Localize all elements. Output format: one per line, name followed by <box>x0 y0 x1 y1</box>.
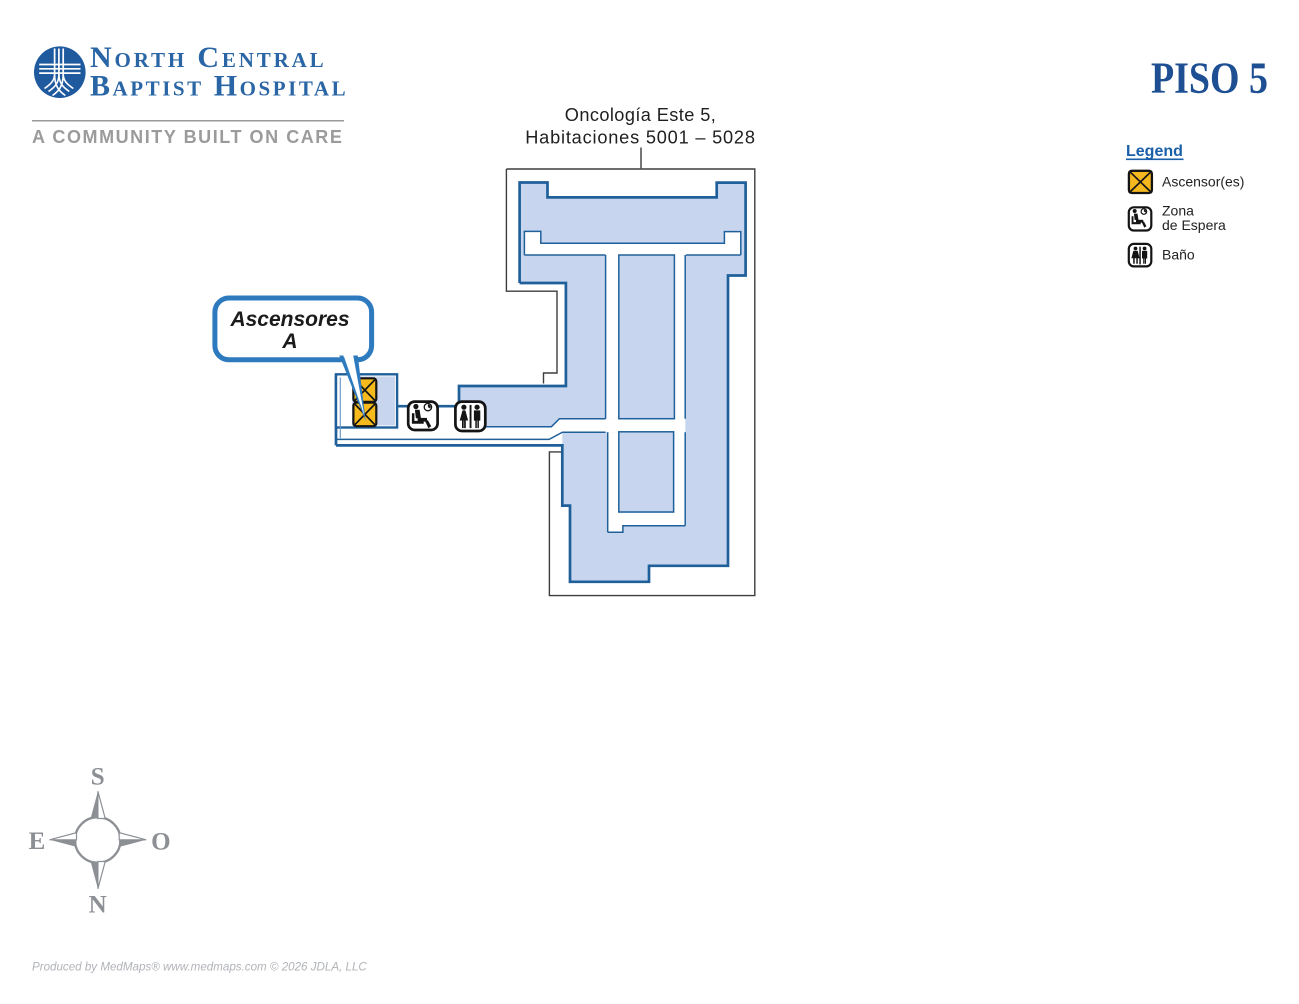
svg-text:E: E <box>29 828 46 855</box>
svg-text:Baptist Hospital: Baptist Hospital <box>90 70 348 103</box>
svg-text:de Espera: de Espera <box>1162 217 1226 233</box>
svg-text:Produced by MedMaps® www.medm: Produced by MedMaps® www.medmaps.com © 2… <box>32 961 367 974</box>
svg-text:O: O <box>151 829 170 856</box>
svg-text:Habitaciones 5001 – 5028: Habitaciones 5001 – 5028 <box>525 128 756 148</box>
svg-text:Oncología Este 5,: Oncología Este 5, <box>565 105 716 125</box>
svg-text:Ascensor(es): Ascensor(es) <box>1162 174 1244 190</box>
svg-text:N: N <box>89 892 107 919</box>
svg-text:Legend: Legend <box>1126 143 1183 160</box>
svg-text:S: S <box>91 764 105 791</box>
svg-text:A: A <box>281 330 297 353</box>
svg-text:Baño: Baño <box>1162 247 1195 263</box>
svg-text:A COMMUNITY BUILT ON CARE: A COMMUNITY BUILT ON CARE <box>32 127 343 147</box>
svg-text:Ascensores: Ascensores <box>229 308 349 331</box>
svg-text:PISO 5: PISO 5 <box>1151 54 1268 103</box>
